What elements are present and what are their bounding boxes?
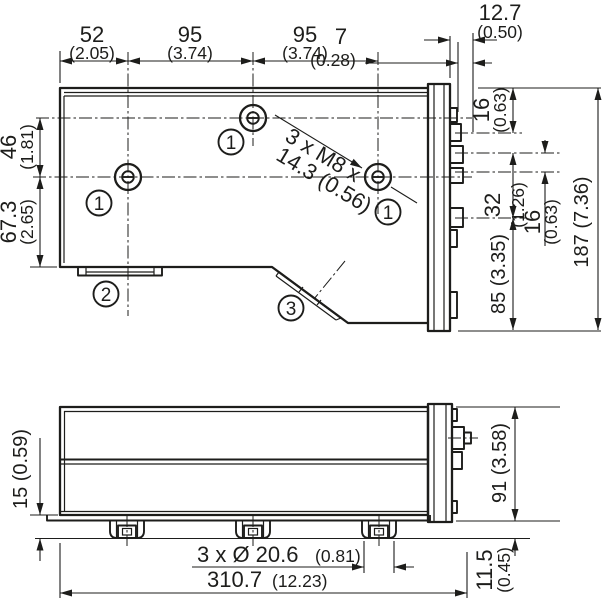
top-view: 52 (2.05) 95 (3.74) 95 (3.74) 7 (0.28) 1… (0, 0, 601, 331)
callout-3: 3 (279, 296, 304, 321)
dim-95a-in: (3.74) (167, 43, 213, 63)
dim-32-mm: 32 (480, 193, 505, 217)
technical-drawing-page: 52 (2.05) 95 (3.74) 95 (3.74) 7 (0.28) 1… (0, 0, 603, 600)
dim-15: 15 (0.59) (10, 429, 32, 509)
end-cap-front (428, 404, 452, 522)
housing-body-front (35, 404, 530, 546)
dim-310p7-mm: 310.7 (207, 567, 262, 592)
svg-text:2: 2 (101, 285, 112, 306)
foot-1 (110, 514, 144, 546)
front-view-dimension-text: 15 (0.59) 91 (3.58) 11.5 (0.45) 3 x Ø 20… (10, 423, 514, 593)
dim-11p5-in: (0.45) (494, 547, 514, 593)
dim-310p7-in: (12.23) (272, 571, 327, 591)
dim-12p7-in: (0.50) (477, 22, 523, 42)
callout-1c: 1 (376, 200, 401, 225)
end-cap-top (428, 84, 450, 331)
svg-text:1: 1 (383, 203, 394, 224)
svg-text:1: 1 (226, 133, 237, 154)
dim-feet-mm: 3 x Ø 20.6 (197, 542, 299, 567)
dim-16a-in: (0.63) (490, 87, 510, 133)
dim-85: 85 (3.35) (488, 234, 510, 314)
housing-body-top (60, 84, 463, 331)
svg-text:1: 1 (94, 194, 105, 215)
dimension-drawing-svg: 52 (2.05) 95 (3.74) 95 (3.74) 7 (0.28) 1… (0, 0, 603, 600)
dim-7-mm: 7 (335, 24, 347, 49)
dim-feet-in: (0.81) (315, 546, 361, 566)
callout-1a: 1 (87, 191, 112, 216)
dim-67p3-in: (2.65) (17, 199, 37, 245)
dim-46-in: (1.81) (17, 124, 37, 170)
callout-1b: 1 (219, 130, 244, 155)
mounting-tab (78, 267, 162, 276)
front-view: 15 (0.59) 91 (3.58) 11.5 (0.45) 3 x Ø 20… (10, 404, 560, 598)
foot-3 (362, 514, 396, 546)
dim-52-in: (2.05) (69, 43, 115, 63)
dim-91: 91 (3.58) (489, 423, 511, 503)
m8-note: 3 x M8 x 14.3 (0.56) (270, 123, 387, 218)
svg-text:3: 3 (286, 299, 297, 320)
dim-7-in: (0.28) (310, 50, 356, 70)
connector-front (452, 409, 471, 513)
callout-2: 2 (94, 282, 119, 307)
dim-16b-in: (0.63) (541, 199, 561, 245)
connector-row (450, 108, 463, 318)
dim-187: 187 (7.36) (571, 176, 593, 267)
